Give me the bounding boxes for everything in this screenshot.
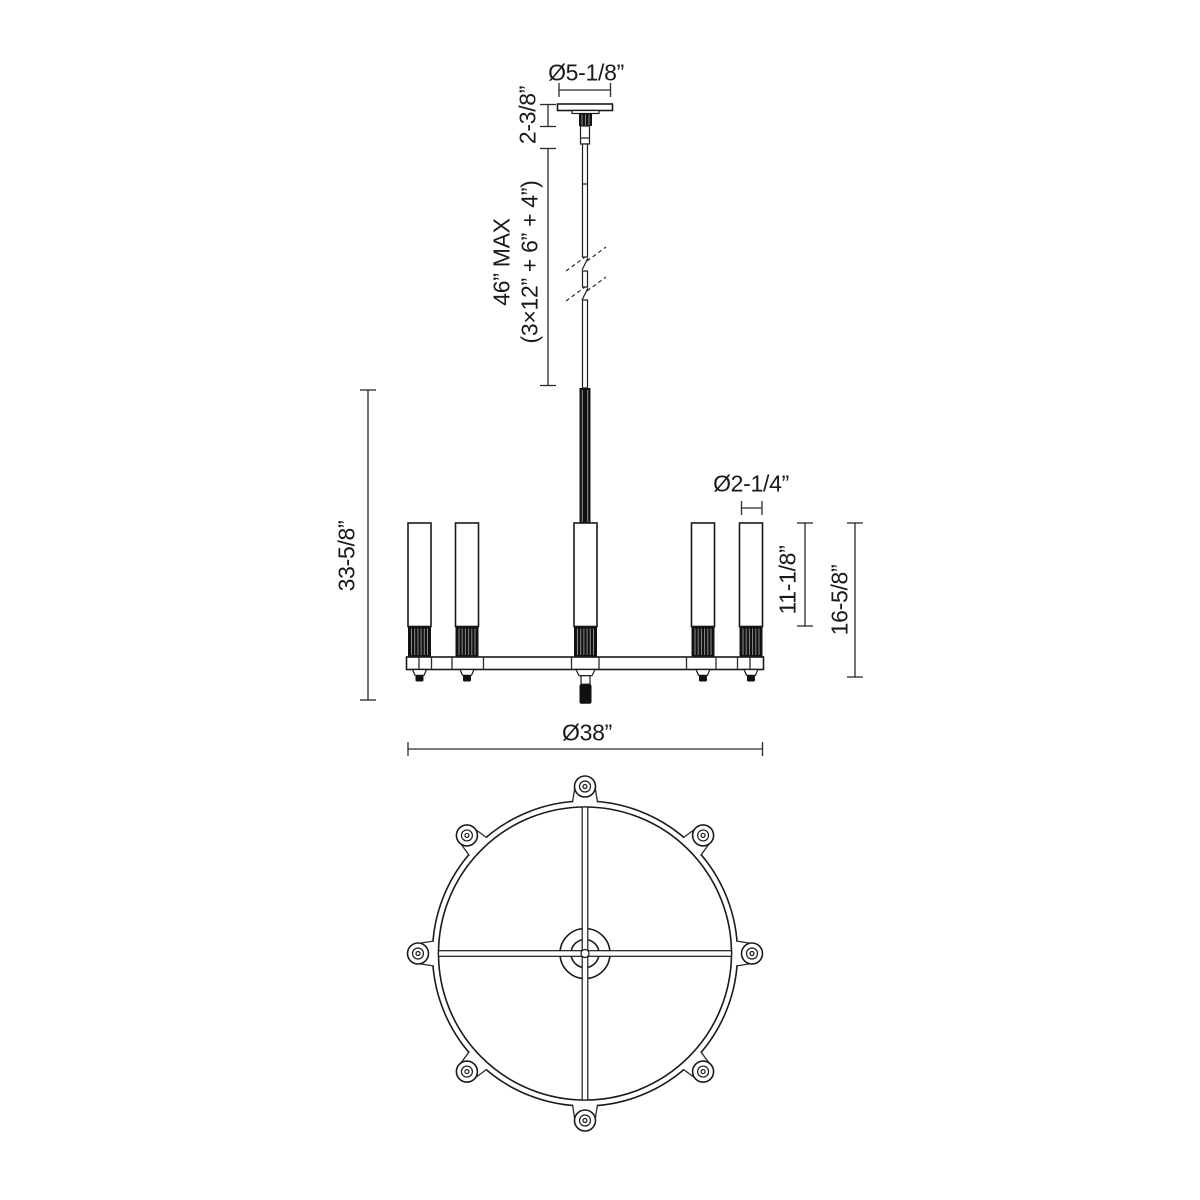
plan-lamp-lug [408, 941, 435, 966]
plan-lamp-lug [736, 941, 763, 966]
elevation-view [360, 83, 863, 756]
plan-lamp-lug [573, 776, 598, 803]
candle-glass [456, 523, 479, 627]
canopy-plate [558, 104, 613, 111]
dim-label-body-height: 16-5/8” [829, 565, 852, 636]
rod-segment-middle [583, 271, 588, 287]
drawing-linework [0, 0, 1200, 1200]
chandelier-body [407, 523, 764, 704]
plan-view [408, 776, 763, 1131]
candle-glass [692, 523, 715, 627]
hang-rod [566, 144, 606, 388]
dim-label-glass-diameter: Ø2-1/4” [713, 473, 789, 496]
dim-overall-height [360, 390, 376, 700]
ceiling-canopy [558, 104, 613, 144]
lamp-sockets [408, 627, 763, 658]
dim-label-suspension-max: 46” MAX [491, 218, 514, 305]
stem-rod [580, 388, 591, 523]
rod-segment-upper [583, 144, 588, 257]
ring-arm [407, 657, 764, 670]
technical-drawing-canvas: Ø5-1/8” 2-3/8” 46” MAX (3×12” + 6” + 4”)… [0, 0, 1200, 1200]
candle-glass [740, 523, 763, 627]
canopy-collar [581, 126, 590, 144]
dim-label-glass-height: 11-1/8” [777, 545, 800, 614]
center-finial [576, 670, 595, 704]
candle-glass [408, 523, 431, 627]
dim-glass-diameter [742, 501, 763, 515]
rod-segment-lower [583, 300, 588, 388]
plan-lamp-lug [573, 1105, 598, 1132]
dim-label-canopy-diameter: Ø5-1/8” [548, 62, 624, 85]
canopy-step [572, 111, 599, 114]
candle-glass [574, 523, 597, 627]
center-stem [580, 388, 591, 523]
plan-center-pin [581, 950, 589, 958]
dim-canopy-height [540, 105, 556, 127]
dim-label-suspension-breakdown: (3×12” + 6” + 4”) [519, 180, 542, 343]
dim-label-overall-height: 33-5/8” [336, 521, 359, 592]
dim-label-fixture-diameter: Ø38” [562, 722, 612, 745]
dim-label-canopy-height: 2-3/8” [517, 86, 540, 144]
